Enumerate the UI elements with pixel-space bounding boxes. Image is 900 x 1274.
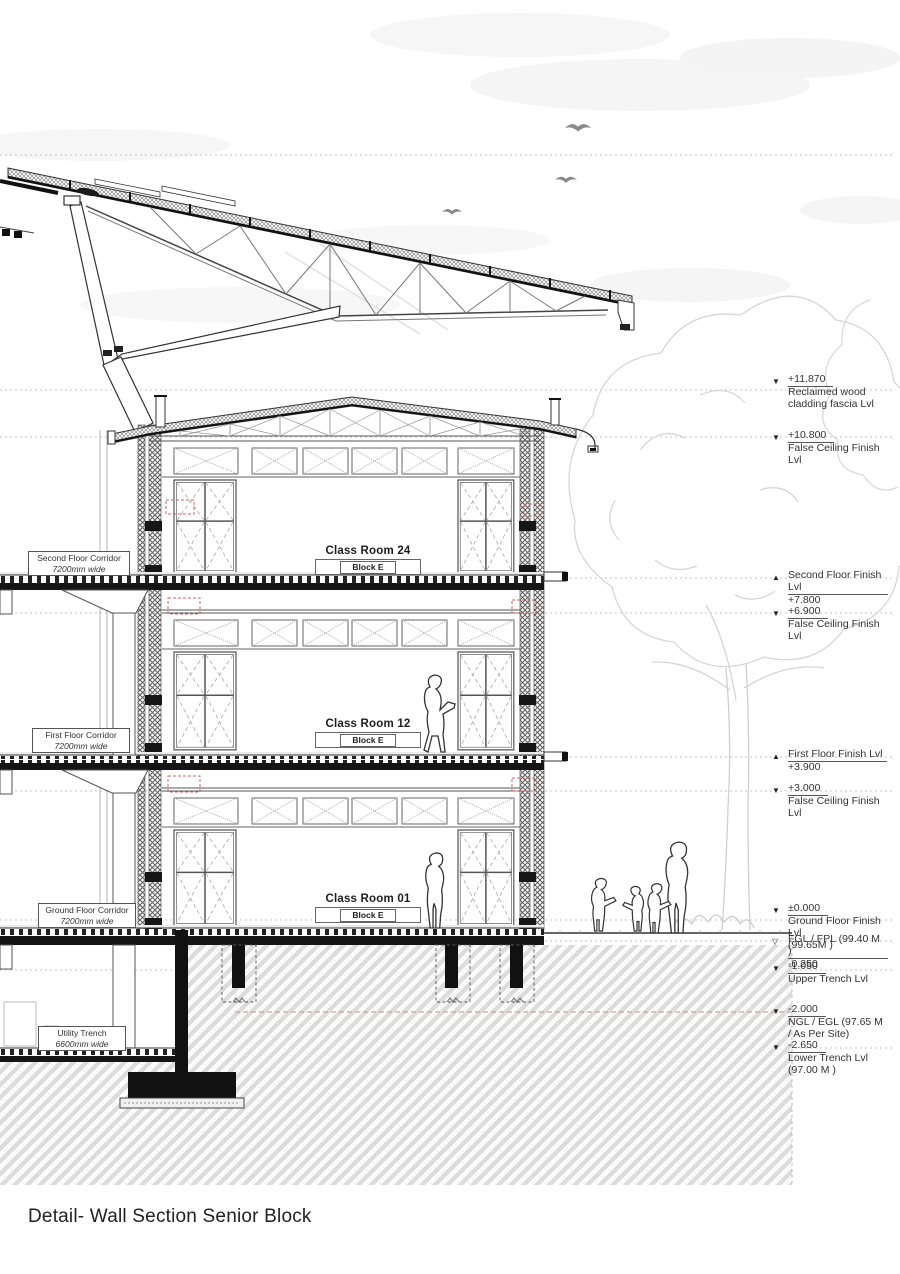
corridor-label-first-floor: First Floor Corridor 7200mm wide bbox=[32, 728, 130, 753]
level-marker-icon: ▽ bbox=[772, 937, 778, 946]
level-value: +11.870 bbox=[788, 374, 833, 387]
corridor-width: 7200mm wide bbox=[35, 741, 127, 752]
level-label: First Floor Finish Lvl bbox=[788, 749, 887, 762]
level-label: False Ceiling Finish Lvl bbox=[788, 443, 888, 467]
level-annotation-false-ceiling-1: ▼ +6.900 False Ceiling Finish Lvl bbox=[770, 606, 888, 643]
level-marker-icon: ▼ bbox=[772, 377, 780, 386]
corridor-name: First Floor Corridor bbox=[35, 730, 127, 741]
level-label: Lower Trench Lvl bbox=[788, 1053, 888, 1065]
level-value: -1.050 bbox=[788, 961, 826, 974]
corridor-width: 7200mm wide bbox=[31, 564, 127, 575]
level-label: False Ceiling Finish Lvl bbox=[788, 796, 888, 820]
level-marker-icon: ▼ bbox=[772, 964, 780, 973]
room-name: Class Room 12 bbox=[308, 718, 428, 730]
level-marker-icon: ▼ bbox=[772, 609, 780, 618]
text-overlay: Second Floor Corridor 7200mm wide First … bbox=[0, 0, 900, 1274]
level-value: +3.000 bbox=[788, 783, 828, 796]
block-name: Block E bbox=[340, 909, 396, 922]
corridor-width: 6600mm wide bbox=[41, 1039, 123, 1050]
corridor-label-second-floor: Second Floor Corridor 7200mm wide bbox=[28, 551, 130, 576]
level-label: Second Floor Finish Lvl bbox=[788, 570, 888, 595]
level-marker-icon: ▲ bbox=[772, 752, 780, 761]
level-label: NGL / EGL (97.65 M / As Per Site) bbox=[788, 1017, 888, 1041]
level-value: -2.650 bbox=[788, 1040, 826, 1053]
level-marker-icon: ▼ bbox=[772, 433, 780, 442]
level-marker-icon: ▼ bbox=[772, 1007, 780, 1016]
room-block-tag: Block E bbox=[315, 559, 421, 575]
room-block-tag: Block E bbox=[315, 732, 421, 748]
level-marker-icon: ▼ bbox=[772, 1043, 780, 1052]
level-annotation-ngl: ▼ -2.000 NGL / EGL (97.65 M / As Per Sit… bbox=[770, 1004, 888, 1041]
level-marker-icon: ▼ bbox=[772, 906, 780, 915]
block-name: Block E bbox=[340, 561, 396, 574]
room-name: Class Room 01 bbox=[308, 893, 428, 905]
level-marker-icon: ▼ bbox=[772, 786, 780, 795]
level-label: FGL / FPL (99.40 M ) bbox=[788, 934, 888, 959]
level-annotation-false-ceiling-0: ▼ +3.000 False Ceiling Finish Lvl bbox=[770, 783, 888, 820]
level-value: -2.000 bbox=[788, 1004, 826, 1017]
room-label-classroom12: Class Room 12 Block E bbox=[308, 718, 428, 748]
level-marker-icon: ▲ bbox=[772, 573, 780, 582]
room-block-tag: Block E bbox=[315, 907, 421, 923]
level-annotation-lower-trench: ▼ -2.650 Lower Trench Lvl (97.00 M ) bbox=[770, 1040, 888, 1077]
level-label: Upper Trench Lvl bbox=[788, 974, 888, 986]
level-annotation-upper-trench: ▼ -1.050 Upper Trench Lvl bbox=[770, 961, 888, 986]
level-annotation-first-floor: ▲ First Floor Finish Lvl +3.900 bbox=[770, 749, 888, 774]
corridor-name: Second Floor Corridor bbox=[31, 553, 127, 564]
drawing-title: Detail- Wall Section Senior Block bbox=[28, 1206, 312, 1228]
wall-section-drawing: Second Floor Corridor 7200mm wide First … bbox=[0, 0, 900, 1274]
level-value: ±0.000 bbox=[788, 903, 828, 916]
level-annotation-fascia: ▼ +11.870 Reclaimed wood cladding fascia… bbox=[770, 374, 888, 411]
level-annotation-false-ceiling-2: ▼ +10.800 False Ceiling Finish Lvl bbox=[770, 430, 888, 467]
level-value: +10.800 bbox=[788, 430, 834, 443]
room-name: Class Room 24 bbox=[308, 545, 428, 557]
corridor-name: Utility Trench bbox=[41, 1028, 123, 1039]
level-value: +6.900 bbox=[788, 606, 828, 619]
level-annotation-second-floor: ▲ Second Floor Finish Lvl +7.800 bbox=[770, 570, 888, 607]
corridor-label-utility-trench: Utility Trench 6600mm wide bbox=[38, 1026, 126, 1051]
level-value: +3.900 bbox=[788, 762, 820, 774]
room-label-classroom01: Class Room 01 Block E bbox=[308, 893, 428, 923]
room-label-classroom24: Class Room 24 Block E bbox=[308, 545, 428, 575]
level-extra: (97.00 M ) bbox=[788, 1065, 888, 1077]
corridor-width: 7200mm wide bbox=[41, 916, 133, 927]
level-label: Reclaimed wood cladding fascia Lvl bbox=[788, 387, 888, 411]
block-name: Block E bbox=[340, 734, 396, 747]
level-label: False Ceiling Finish Lvl bbox=[788, 619, 888, 643]
corridor-label-ground-floor: Ground Floor Corridor 7200mm wide bbox=[38, 903, 136, 928]
corridor-name: Ground Floor Corridor bbox=[41, 905, 133, 916]
